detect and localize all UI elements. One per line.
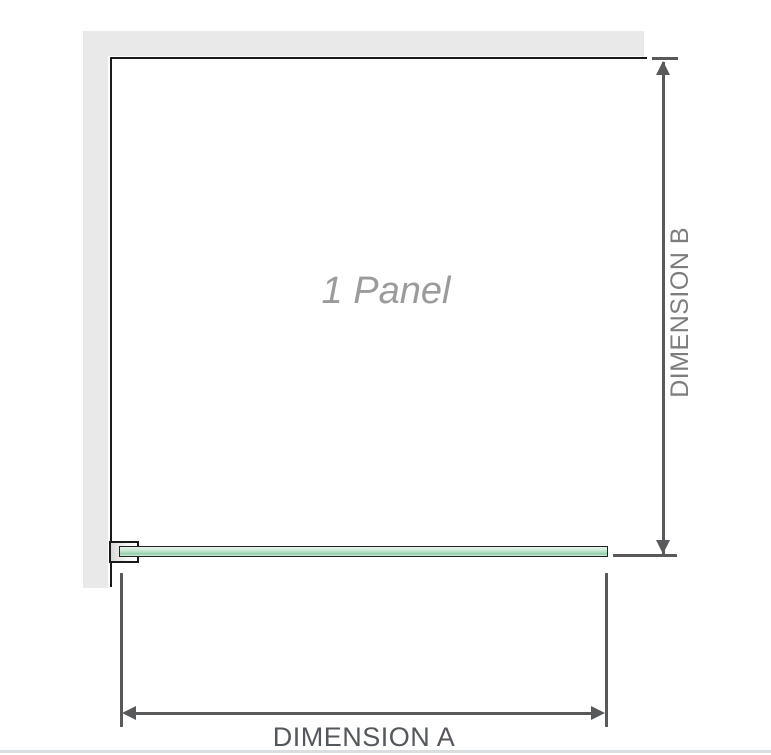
wall-top-strip: [83, 31, 644, 56]
frame-left-edge: [110, 57, 112, 587]
dimension-a-line: [128, 712, 600, 715]
bottom-divider: [0, 750, 771, 753]
dimension-b-line: [662, 62, 665, 554]
dimension-a-left-extension-line: [120, 573, 123, 727]
dimension-a-right-extension-line: [605, 573, 608, 727]
glass-panel: [119, 546, 608, 557]
dimension-b-bottom-tick: [613, 554, 677, 557]
panel-count-label: 1 Panel: [286, 270, 486, 313]
arrow-right-icon: [591, 706, 605, 720]
dimension-b-label-wrap: DIMENSION B: [666, 232, 694, 392]
arrow-down-icon: [656, 540, 670, 554]
dimension-a-label: DIMENSION A: [244, 722, 484, 753]
arrow-up-icon: [656, 61, 670, 75]
dimension-b-top-tick: [652, 57, 678, 60]
arrow-left-icon: [122, 706, 136, 720]
wall-left-strip: [83, 31, 108, 588]
frame-top-edge: [110, 57, 647, 59]
dimension-b-label: DIMENSION B: [666, 227, 695, 398]
shower-screen-dimension-diagram: 1 Panel DIMENSION B DIMENSION A: [0, 0, 771, 755]
